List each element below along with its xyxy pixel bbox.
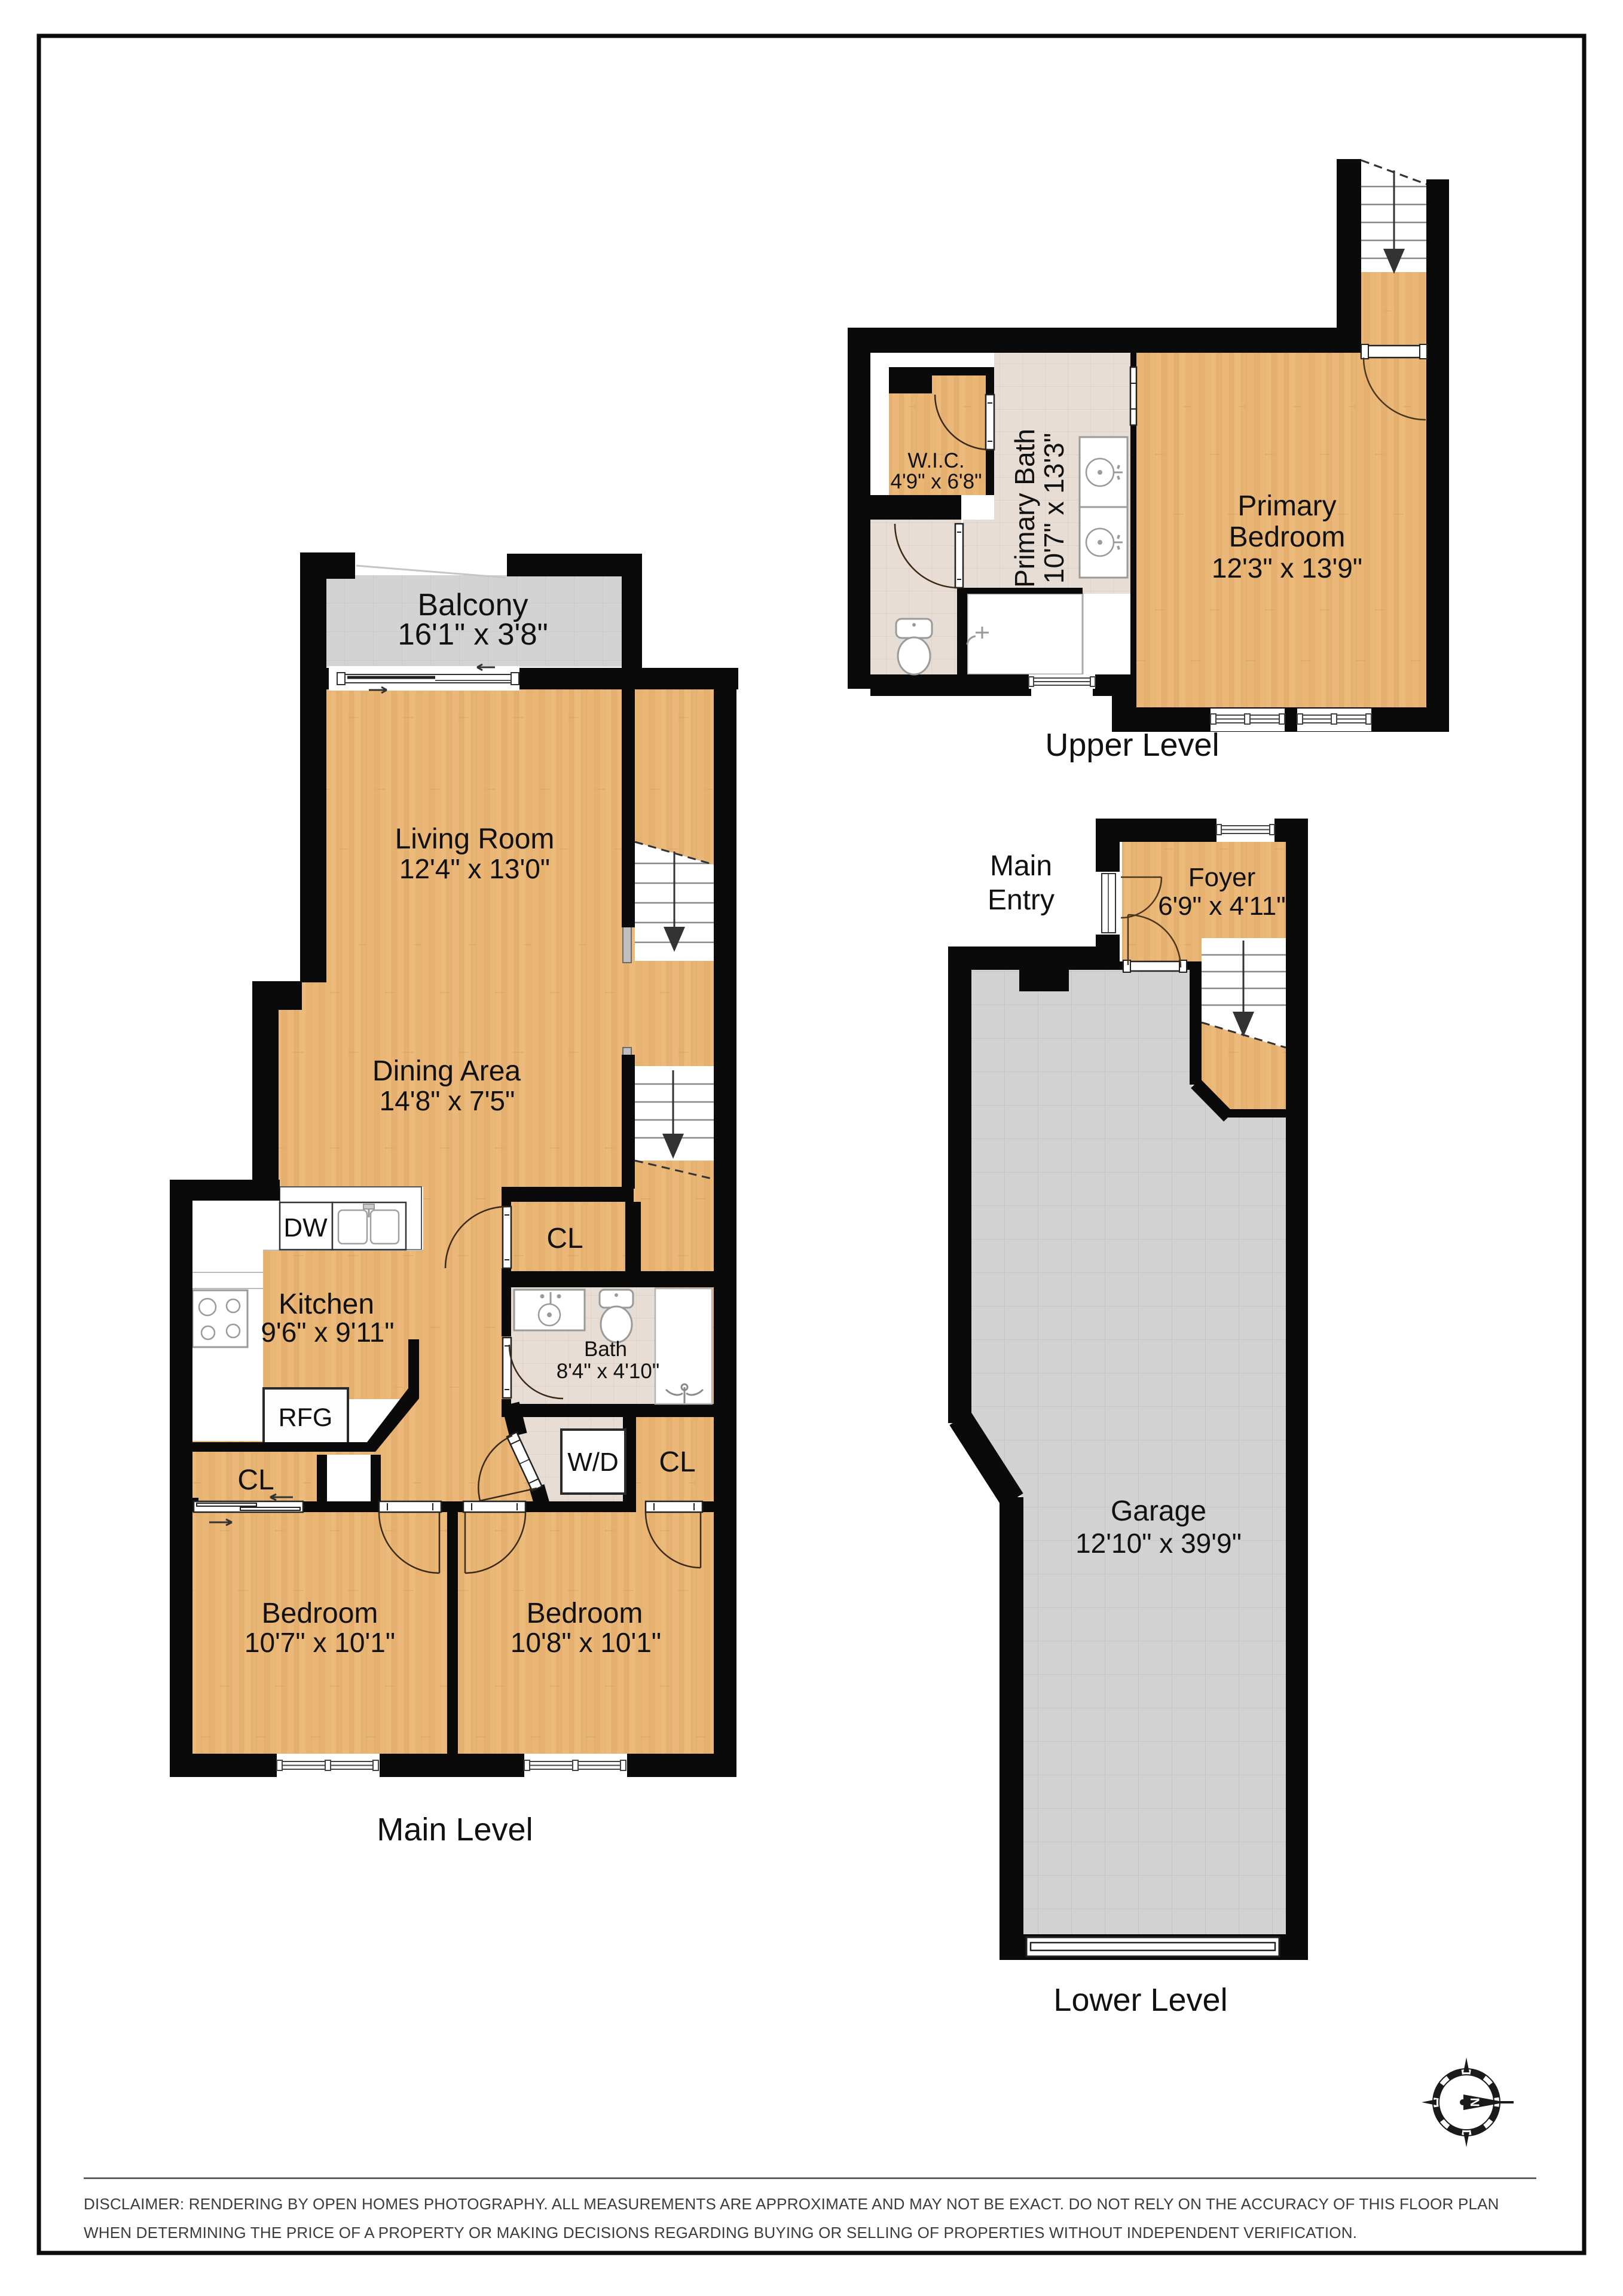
svg-text:Bedroom: Bedroom: [527, 1598, 643, 1629]
svg-text:10'7" x 13'3": 10'7" x 13'3": [1038, 433, 1069, 584]
svg-text:Primary: Primary: [1237, 490, 1336, 522]
svg-text:Foyer: Foyer: [1188, 863, 1255, 892]
svg-text:14'8" x 7'5": 14'8" x 7'5": [380, 1085, 515, 1116]
svg-text:12'3" x 13'9": 12'3" x 13'9": [1212, 552, 1362, 584]
svg-text:Lower Level: Lower Level: [1053, 1982, 1227, 2018]
svg-text:Bedroom: Bedroom: [1229, 521, 1346, 553]
svg-text:8'4" x 4'10": 8'4" x 4'10": [557, 1360, 660, 1383]
svg-text:Living Room: Living Room: [395, 823, 555, 855]
svg-text:W.I.C.: W.I.C.: [907, 449, 964, 472]
svg-text:DISCLAIMER: RENDERING BY OPEN: DISCLAIMER: RENDERING BY OPEN HOMES PHOT…: [84, 2195, 1499, 2213]
svg-text:6'9" x 4'11": 6'9" x 4'11": [1158, 891, 1286, 921]
svg-text:Entry: Entry: [988, 884, 1055, 916]
svg-text:N: N: [1468, 2097, 1481, 2106]
svg-text:Main: Main: [990, 850, 1052, 882]
svg-text:Primary Bath: Primary Bath: [1009, 429, 1040, 588]
svg-text:WHEN DETERMINING THE PRICE OF: WHEN DETERMINING THE PRICE OF A PROPERTY…: [84, 2224, 1357, 2242]
svg-text:Main Level: Main Level: [377, 1812, 533, 1848]
svg-text:CL: CL: [546, 1223, 583, 1254]
svg-text:12'4" x 13'0": 12'4" x 13'0": [399, 853, 550, 884]
svg-text:10'8" x 10'1": 10'8" x 10'1": [511, 1627, 661, 1658]
svg-text:DW: DW: [283, 1213, 328, 1242]
svg-text:Kitchen: Kitchen: [279, 1289, 374, 1320]
svg-text:Dining Area: Dining Area: [372, 1055, 521, 1087]
svg-text:Garage: Garage: [1111, 1495, 1206, 1527]
svg-text:16'1" x 3'8": 16'1" x 3'8": [398, 617, 548, 651]
svg-text:W/D: W/D: [567, 1448, 619, 1477]
svg-text:Upper Level: Upper Level: [1045, 727, 1219, 763]
svg-text:9'6" x 9'11": 9'6" x 9'11": [261, 1317, 394, 1348]
svg-text:Bedroom: Bedroom: [262, 1598, 378, 1629]
svg-text:12'10" x 39'9": 12'10" x 39'9": [1075, 1528, 1242, 1559]
svg-text:CL: CL: [659, 1446, 695, 1478]
svg-text:4'9" x 6'8": 4'9" x 6'8": [890, 470, 982, 493]
svg-text:Bath: Bath: [584, 1338, 627, 1361]
svg-text:10'7" x 10'1": 10'7" x 10'1": [244, 1627, 395, 1658]
svg-text:CL: CL: [237, 1464, 274, 1496]
svg-text:RFG: RFG: [279, 1403, 333, 1432]
